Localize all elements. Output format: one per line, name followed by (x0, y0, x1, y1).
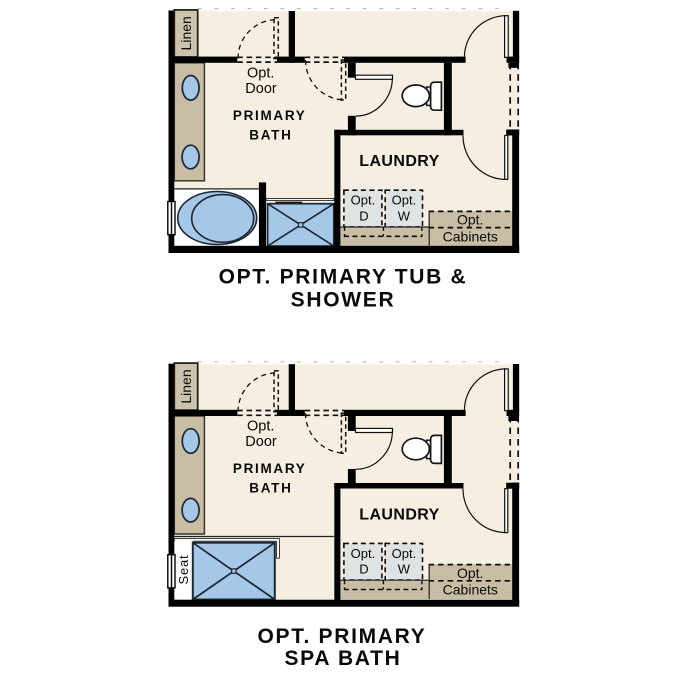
svg-text:Opt.: Opt. (392, 193, 417, 208)
svg-text:D: D (359, 208, 368, 223)
svg-text:W: W (398, 562, 411, 577)
svg-text:PRIMARY: PRIMARY (233, 108, 307, 123)
svg-text:BATH: BATH (249, 481, 292, 496)
svg-text:PRIMARY: PRIMARY (233, 461, 307, 476)
svg-text:Linen: Linen (178, 369, 194, 403)
svg-text:D: D (359, 562, 368, 577)
svg-text:Door: Door (245, 81, 277, 97)
svg-text:SHOWER: SHOWER (291, 288, 396, 311)
svg-text:Opt.: Opt. (351, 193, 376, 208)
svg-text:BATH: BATH (249, 127, 292, 142)
svg-text:Door: Door (245, 434, 277, 450)
svg-text:LAUNDRY: LAUNDRY (359, 153, 439, 170)
svg-text:OPT. PRIMARY TUB &: OPT. PRIMARY TUB & (219, 266, 468, 289)
svg-text:Opt.: Opt. (351, 546, 376, 561)
svg-text:Seat: Seat (176, 555, 191, 585)
svg-text:Opt.: Opt. (457, 565, 483, 581)
svg-text:Cabinets: Cabinets (443, 228, 498, 244)
svg-text:OPT. PRIMARY: OPT. PRIMARY (258, 625, 427, 648)
svg-text:Linen: Linen (178, 16, 194, 50)
svg-text:Cabinets: Cabinets (443, 582, 498, 598)
svg-text:Opt.: Opt. (457, 212, 483, 228)
svg-text:Opt.: Opt. (392, 546, 417, 561)
svg-text:LAUNDRY: LAUNDRY (359, 506, 439, 523)
svg-text:Opt.: Opt. (247, 419, 274, 435)
svg-text:Opt.: Opt. (247, 66, 274, 82)
svg-text:W: W (398, 208, 411, 223)
svg-text:SPA BATH: SPA BATH (284, 647, 401, 670)
